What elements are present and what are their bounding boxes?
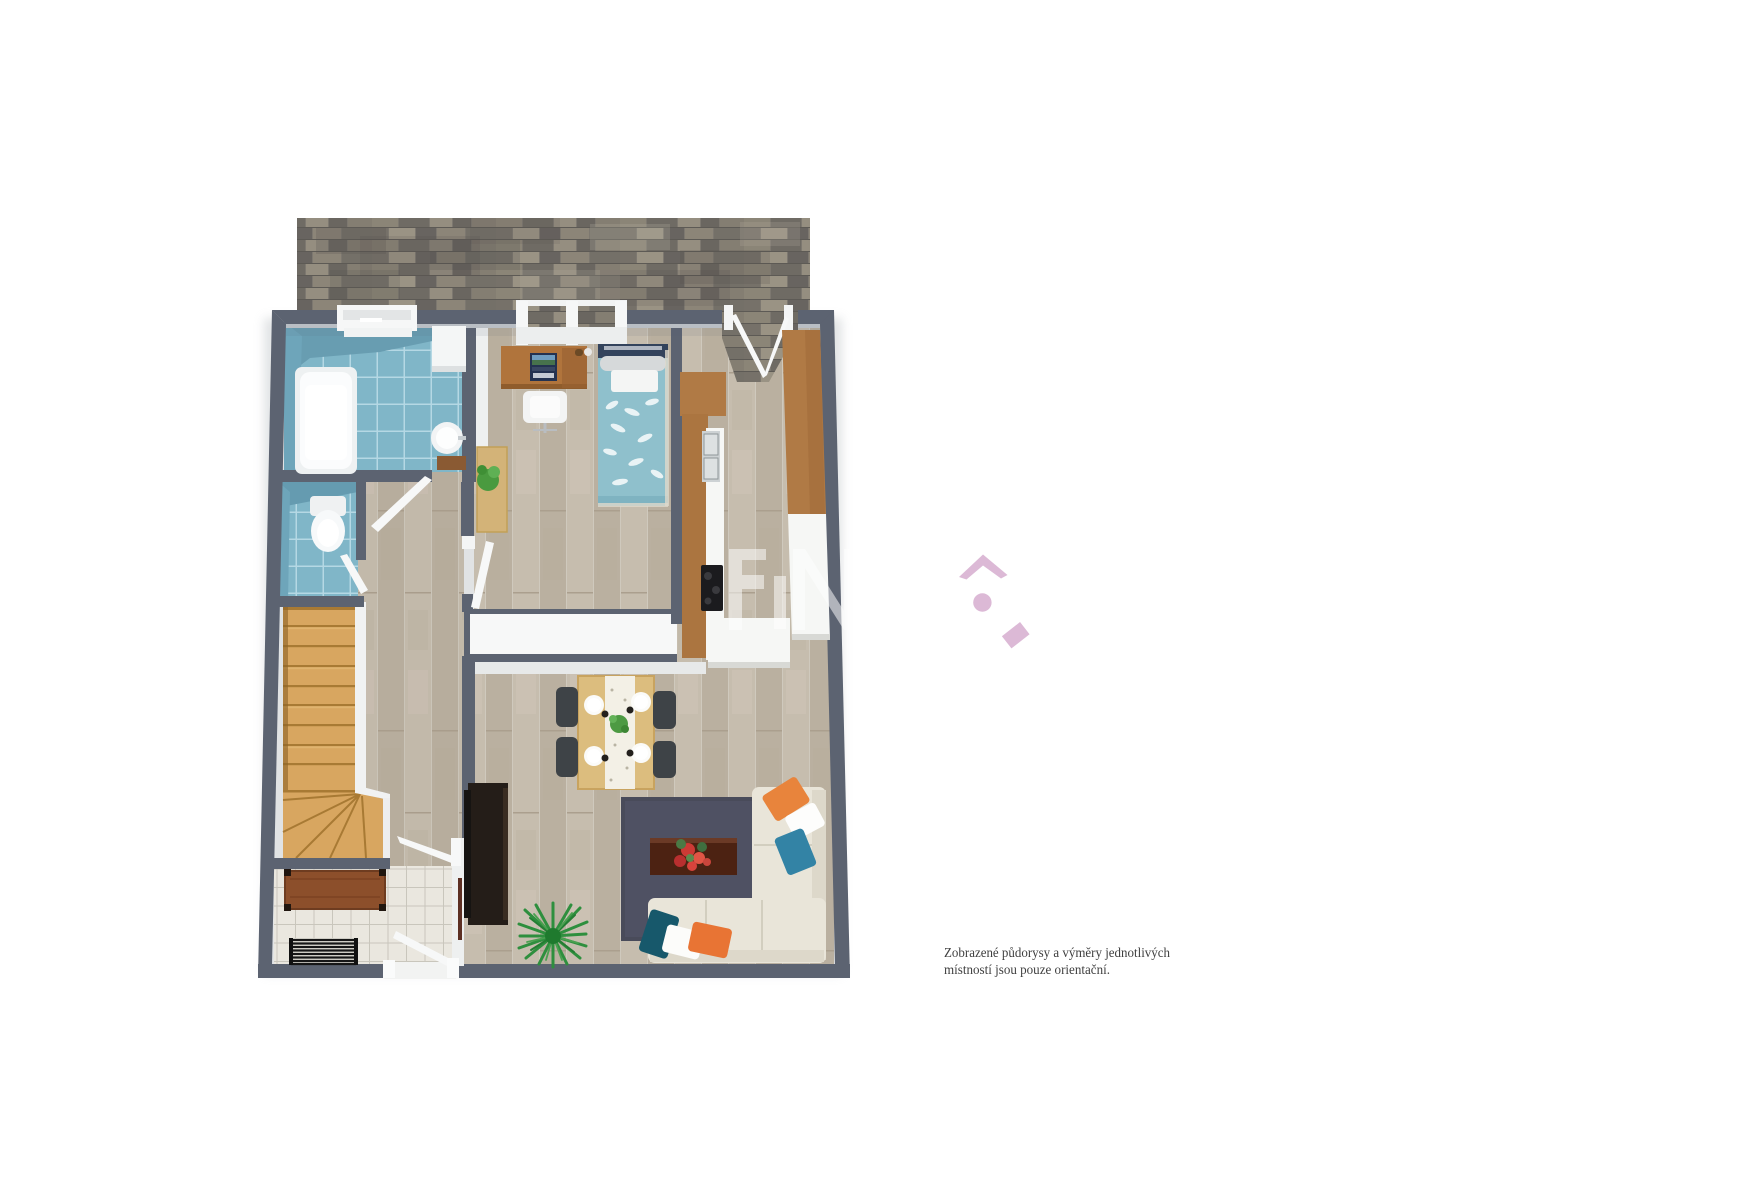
svg-text:Zobrazené půdorysy a výměry je: Zobrazené půdorysy a výměry jednotlivých <box>944 946 1170 961</box>
svg-text:místností jsou pouze orientačn: místností jsou pouze orientační. <box>944 963 1110 978</box>
